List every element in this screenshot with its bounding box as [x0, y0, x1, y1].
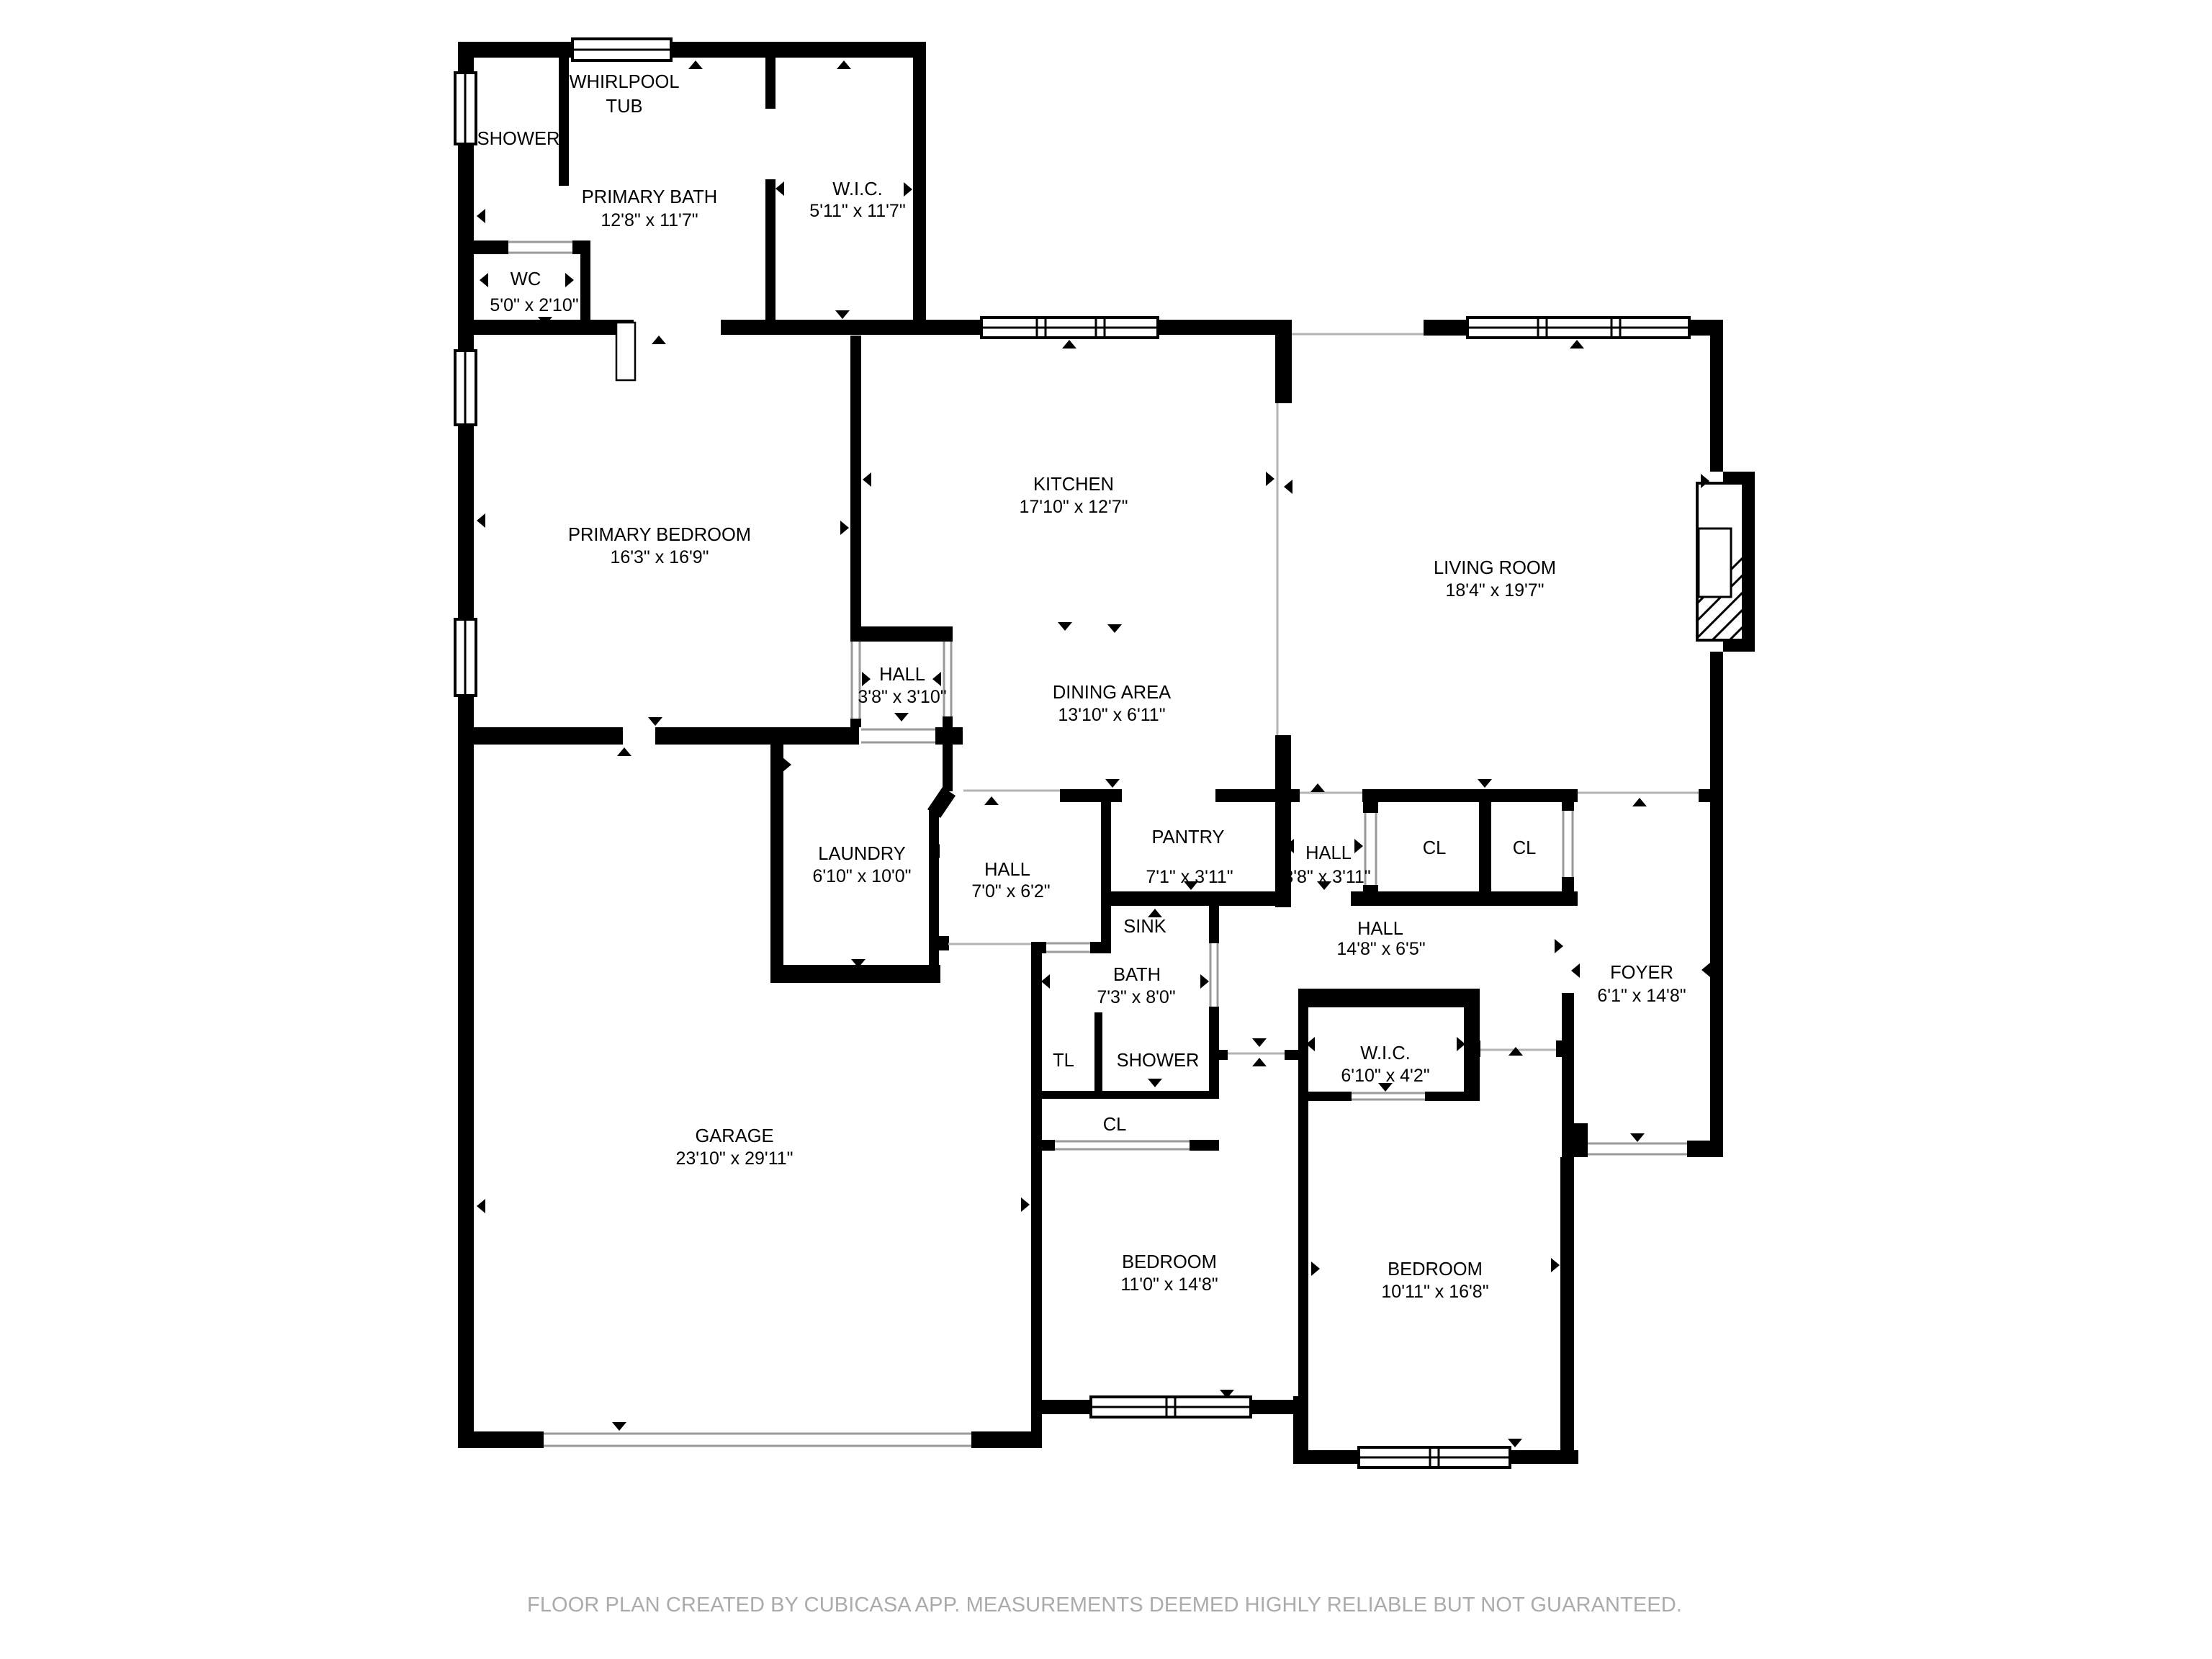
svg-text:FLOOR PLAN CREATED BY CUBICASA: FLOOR PLAN CREATED BY CUBICASA APP. MEAS… — [527, 1593, 1682, 1617]
svg-text:SHOWER: SHOWER — [477, 129, 560, 149]
svg-text:HALL: HALL — [1305, 843, 1352, 863]
svg-text:13'10" x 6'11": 13'10" x 6'11" — [1058, 705, 1165, 725]
svg-text:7'3" x 8'0": 7'3" x 8'0" — [1097, 987, 1175, 1007]
svg-text:BATH: BATH — [1113, 965, 1161, 985]
svg-text:14'8" x 6'5": 14'8" x 6'5" — [1336, 939, 1425, 959]
svg-text:PANTRY: PANTRY — [1151, 827, 1224, 848]
svg-text:W.I.C.: W.I.C. — [1360, 1043, 1410, 1064]
svg-text:3'8" x 3'11": 3'8" x 3'11" — [1283, 867, 1370, 887]
svg-text:PRIMARY BATH: PRIMARY BATH — [582, 187, 717, 207]
svg-text:10'11" x 16'8": 10'11" x 16'8" — [1381, 1282, 1488, 1302]
svg-text:6'10" x 4'2": 6'10" x 4'2" — [1341, 1066, 1429, 1086]
svg-text:SINK: SINK — [1123, 917, 1166, 937]
svg-text:7'0" x 6'2": 7'0" x 6'2" — [971, 881, 1050, 902]
svg-text:HALL: HALL — [984, 860, 1030, 880]
svg-text:CL: CL — [1513, 838, 1537, 858]
svg-text:6'1" x 14'8": 6'1" x 14'8" — [1597, 986, 1686, 1006]
svg-text:FOYER: FOYER — [1610, 963, 1673, 983]
svg-text:6'10" x 10'0": 6'10" x 10'0" — [812, 866, 911, 886]
svg-text:WC: WC — [511, 269, 541, 289]
svg-text:SHOWER: SHOWER — [1117, 1051, 1200, 1071]
svg-text:TUB: TUB — [606, 96, 643, 117]
svg-text:23'10" x 29'11": 23'10" x 29'11" — [675, 1148, 793, 1169]
svg-text:3'8" x 3'10": 3'8" x 3'10" — [858, 687, 946, 707]
svg-text:BEDROOM: BEDROOM — [1388, 1259, 1483, 1280]
svg-text:GARAGE: GARAGE — [695, 1126, 773, 1146]
svg-text:CL: CL — [1423, 838, 1447, 858]
svg-text:W.I.C.: W.I.C. — [832, 179, 882, 199]
svg-text:LAUNDRY: LAUNDRY — [818, 844, 905, 864]
svg-text:PRIMARY BEDROOM: PRIMARY BEDROOM — [568, 525, 751, 545]
svg-text:18'4" x 19'7": 18'4" x 19'7" — [1445, 580, 1544, 601]
svg-text:5'0" x 2'10": 5'0" x 2'10" — [490, 295, 578, 315]
svg-text:BEDROOM: BEDROOM — [1122, 1252, 1217, 1272]
svg-text:TL: TL — [1053, 1051, 1074, 1071]
svg-text:11'0" x 14'8": 11'0" x 14'8" — [1120, 1274, 1218, 1295]
svg-text:HALL: HALL — [879, 665, 925, 685]
svg-text:12'8" x 11'7": 12'8" x 11'7" — [601, 210, 698, 230]
svg-text:CL: CL — [1103, 1115, 1127, 1135]
svg-text:HALL: HALL — [1357, 919, 1403, 939]
svg-text:17'10" x 12'7": 17'10" x 12'7" — [1019, 497, 1128, 517]
svg-text:WHIRLPOOL: WHIRLPOOL — [569, 72, 679, 92]
svg-text:LIVING ROOM: LIVING ROOM — [1434, 558, 1556, 578]
svg-text:5'11" x 11'7": 5'11" x 11'7" — [809, 201, 905, 221]
svg-text:KITCHEN: KITCHEN — [1033, 475, 1114, 495]
svg-text:DINING AREA: DINING AREA — [1053, 683, 1171, 703]
svg-text:7'1" x 3'11": 7'1" x 3'11" — [1146, 867, 1233, 887]
svg-text:16'3" x 16'9": 16'3" x 16'9" — [610, 547, 709, 567]
